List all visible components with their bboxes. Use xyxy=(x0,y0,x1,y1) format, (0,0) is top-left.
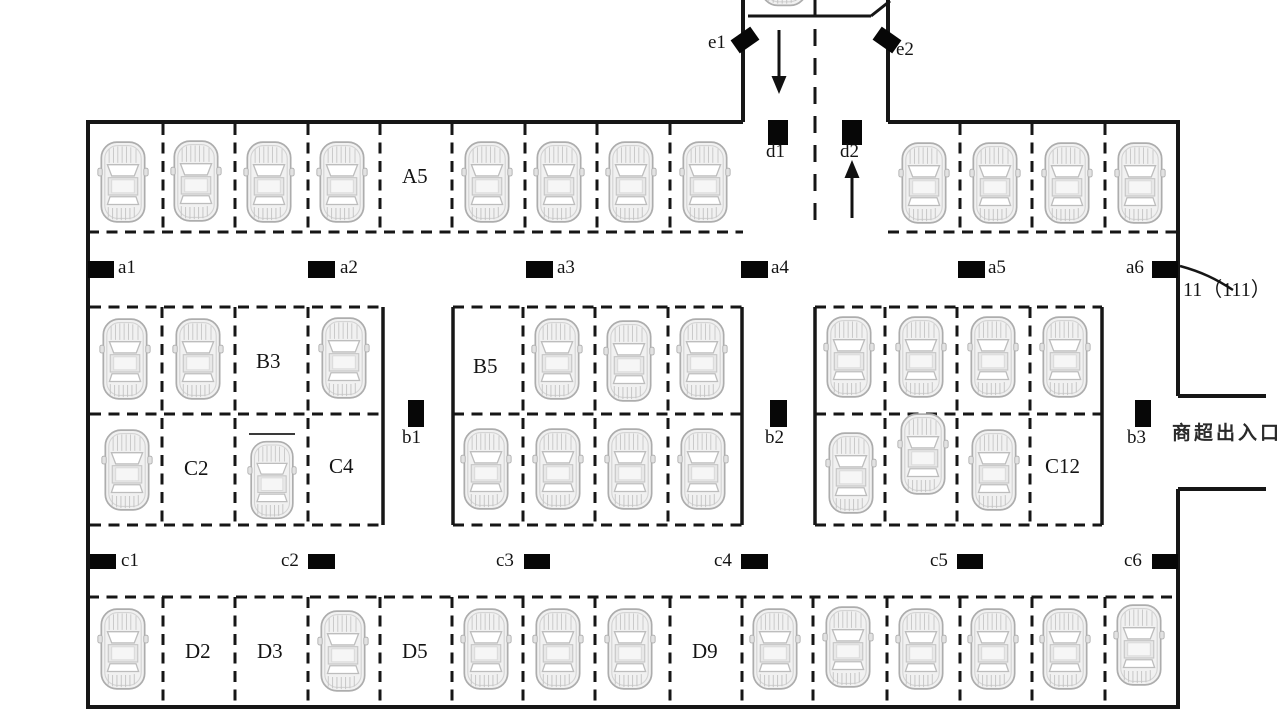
sensor-a3-label: a3 xyxy=(557,258,575,277)
car xyxy=(98,609,148,689)
entering-car xyxy=(758,0,810,5)
sensor-c3 xyxy=(524,554,550,569)
space-label-B5: B5 xyxy=(473,356,498,377)
car xyxy=(534,142,584,222)
sensor-b1 xyxy=(408,400,424,427)
sensor-a5 xyxy=(958,261,985,278)
space-label-C4: C4 xyxy=(329,456,354,477)
car xyxy=(318,611,368,691)
car xyxy=(98,142,148,222)
car xyxy=(533,609,583,689)
sensor-c4-label: c4 xyxy=(714,551,732,570)
car xyxy=(605,609,655,689)
car xyxy=(899,143,949,223)
space-label-D9: D9 xyxy=(692,641,718,662)
car xyxy=(171,141,221,221)
car xyxy=(968,609,1018,689)
space-label-C12: C12 xyxy=(1045,456,1080,477)
car xyxy=(824,317,874,397)
space-label-A5: A5 xyxy=(402,166,428,187)
car xyxy=(100,319,150,399)
sensor-a6-label: a6 xyxy=(1126,258,1144,277)
parked-cars xyxy=(98,0,1165,691)
sensor-c3-label: c3 xyxy=(496,551,514,570)
sensor-b3-label: b3 xyxy=(1127,428,1146,447)
zone-id-label: 11（111） xyxy=(1183,280,1271,300)
sensor-a2-label: a2 xyxy=(340,258,358,277)
space-label-C2: C2 xyxy=(184,458,209,479)
sensor-a1 xyxy=(88,261,114,278)
car xyxy=(1040,609,1090,689)
sensor-b1-label: b1 xyxy=(402,428,421,447)
car xyxy=(969,430,1019,510)
sensor-c1-label: c1 xyxy=(121,551,139,570)
car xyxy=(968,317,1018,397)
sensor-b2-label: b2 xyxy=(765,428,784,447)
car xyxy=(462,142,512,222)
car xyxy=(1042,143,1092,223)
car xyxy=(970,143,1020,223)
sensor-a4 xyxy=(741,261,768,278)
entry-arrow-down xyxy=(772,30,787,94)
sensor-a5-label: a5 xyxy=(988,258,1006,277)
sensor-a6 xyxy=(1152,261,1178,278)
sensor-e1-label: e1 xyxy=(708,33,726,52)
sensor-a1-label: a1 xyxy=(118,258,136,277)
space-label-D2: D2 xyxy=(185,641,211,662)
car xyxy=(680,142,730,222)
car xyxy=(244,142,294,222)
sensor-e1 xyxy=(731,27,760,54)
parking-lot-floor-plan: e1 e2 d1 d2 A5 a1 a2 a3 a4 a5 a6 11（111）… xyxy=(0,0,1280,720)
sensor-a3 xyxy=(526,261,553,278)
car xyxy=(317,142,367,222)
car xyxy=(1115,143,1165,223)
car xyxy=(533,429,583,509)
car xyxy=(678,429,728,509)
car xyxy=(461,609,511,689)
car xyxy=(896,609,946,689)
car xyxy=(461,429,511,509)
sensor-c4 xyxy=(741,554,768,569)
sensor-d2-label: d2 xyxy=(840,142,859,161)
space-label-D3: D3 xyxy=(257,641,283,662)
sensor-b3 xyxy=(1135,400,1151,427)
sensor-c5-label: c5 xyxy=(930,551,948,570)
car xyxy=(606,142,656,222)
car xyxy=(173,319,223,399)
sensor-c5 xyxy=(957,554,983,569)
mall-entrance-label: 商超出入口 xyxy=(1172,424,1280,443)
car xyxy=(532,319,582,399)
car xyxy=(898,414,948,494)
car xyxy=(319,318,369,398)
car xyxy=(605,429,655,509)
sensor-c2-label: c2 xyxy=(281,551,299,570)
car xyxy=(826,433,876,513)
car xyxy=(750,609,800,689)
sensor-c6-label: c6 xyxy=(1124,551,1142,570)
sensor-a2 xyxy=(308,261,335,278)
sensor-c6 xyxy=(1152,554,1178,569)
car xyxy=(102,430,152,510)
sensor-d1-label: d1 xyxy=(766,142,785,161)
space-label-B3: B3 xyxy=(256,351,281,372)
sensor-c1 xyxy=(90,554,116,569)
space-label-D5: D5 xyxy=(402,641,428,662)
floor-plan-drawing xyxy=(0,0,1280,720)
sensor-c2 xyxy=(308,554,335,569)
car xyxy=(248,442,296,519)
car xyxy=(896,317,946,397)
car xyxy=(604,321,654,401)
sensor-a4-label: a4 xyxy=(771,258,789,277)
sensor-e2-label: e2 xyxy=(896,40,914,59)
car xyxy=(1040,317,1090,397)
car xyxy=(823,607,873,687)
car xyxy=(1114,605,1164,685)
exit-arrow-up xyxy=(845,160,860,218)
sensor-b2 xyxy=(770,400,787,427)
car xyxy=(677,319,727,399)
